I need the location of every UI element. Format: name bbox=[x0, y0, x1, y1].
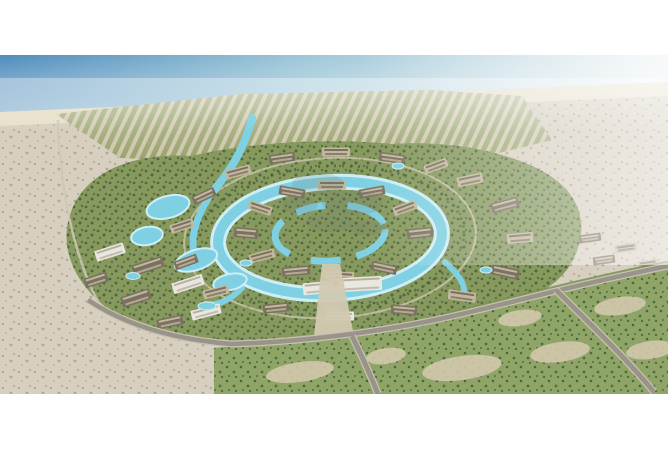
building-cluster bbox=[322, 148, 350, 157]
building-cluster bbox=[234, 227, 259, 239]
watermark-blob bbox=[292, 173, 344, 195]
watermark-blob bbox=[350, 220, 386, 236]
distance-haze-top bbox=[0, 78, 668, 133]
photo-area bbox=[0, 55, 668, 394]
swimming-pool bbox=[198, 302, 216, 310]
aerial-masterplan-render bbox=[0, 0, 668, 452]
watermark-blob bbox=[282, 196, 318, 214]
swimming-pool bbox=[240, 260, 252, 266]
swimming-pool bbox=[126, 273, 140, 280]
listing-photo-frame bbox=[0, 0, 668, 452]
swimming-pool bbox=[480, 267, 492, 273]
watermark-blob bbox=[306, 212, 354, 232]
